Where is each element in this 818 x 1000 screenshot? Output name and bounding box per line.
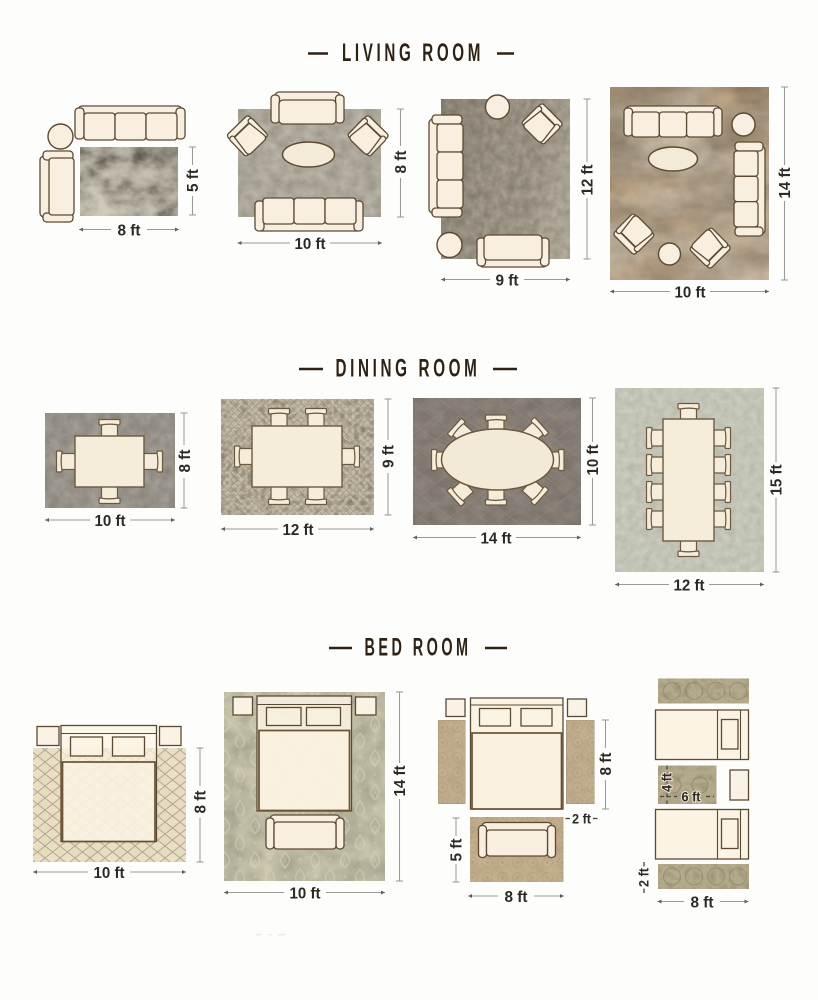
svg-text:10 ft: 10 ft: [95, 513, 127, 530]
svg-text:9 ft: 9 ft: [496, 273, 520, 290]
svg-text:14 ft: 14 ft: [481, 531, 513, 548]
svg-text:5 ft: 5 ft: [449, 838, 466, 862]
svg-text:10 ft: 10 ft: [290, 886, 322, 903]
svg-text:9 ft: 9 ft: [381, 444, 398, 468]
svg-text:12 ft: 12 ft: [283, 522, 315, 539]
svg-text:14 ft: 14 ft: [392, 765, 409, 797]
svg-text:8 ft: 8 ft: [177, 449, 194, 473]
svg-text:8 ft: 8 ft: [505, 889, 529, 906]
svg-text:BED ROOM: BED ROOM: [365, 634, 472, 662]
svg-text:10 ft: 10 ft: [295, 236, 327, 253]
svg-text:2 ft: 2 ft: [636, 868, 652, 887]
svg-text:10 ft: 10 ft: [94, 865, 126, 882]
svg-text:LIVING ROOM: LIVING ROOM: [342, 39, 484, 67]
svg-text:8 ft: 8 ft: [598, 752, 615, 776]
svg-text:8 ft: 8 ft: [691, 895, 715, 912]
svg-text:6 ft: 6 ft: [682, 789, 701, 805]
svg-text:8 ft: 8 ft: [393, 150, 410, 174]
svg-text:12 ft: 12 ft: [674, 578, 706, 595]
svg-text:10 ft: 10 ft: [585, 444, 602, 476]
svg-text:10 ft: 10 ft: [675, 285, 707, 302]
svg-text:8 ft: 8 ft: [118, 223, 142, 240]
svg-text:8 ft: 8 ft: [193, 790, 210, 814]
svg-text:14 ft: 14 ft: [777, 167, 794, 199]
svg-text:2 ft: 2 ft: [572, 811, 591, 827]
svg-text:15 ft: 15 ft: [769, 464, 786, 496]
svg-text:12 ft: 12 ft: [580, 164, 597, 196]
svg-text:4 ft: 4 ft: [659, 773, 675, 792]
svg-text:DINING ROOM: DINING ROOM: [336, 355, 481, 383]
svg-text:5 ft: 5 ft: [185, 168, 202, 192]
